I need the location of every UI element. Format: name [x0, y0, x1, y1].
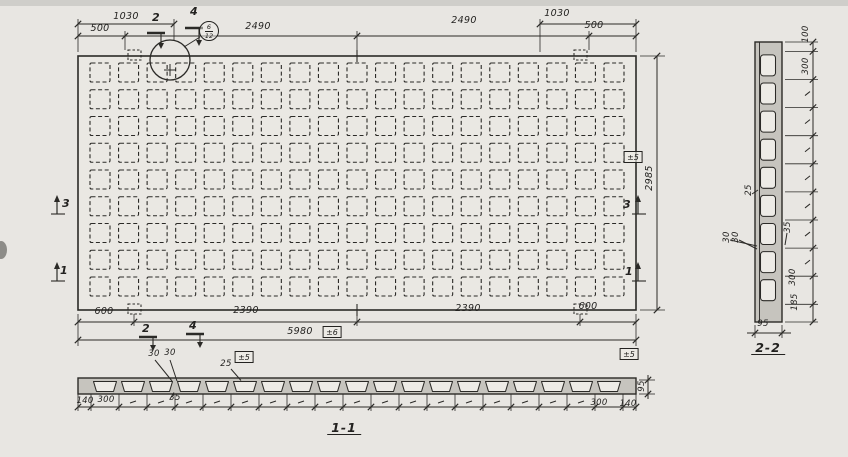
section11-void	[94, 382, 117, 392]
s22-end-185: 185	[790, 293, 800, 310]
section11-void	[374, 382, 397, 392]
dim-bottom-2390-right: 2390	[455, 304, 480, 314]
s22-rib-35: 35	[783, 221, 793, 232]
tolerance-plan-width: ±5	[624, 151, 643, 163]
s11-rib-35: 35	[169, 393, 180, 403]
cutmark-2-bottom: 2	[142, 324, 150, 334]
cutmark-1-right: 1	[625, 267, 633, 277]
dim-bottom-600-left: 600	[94, 307, 113, 317]
section11-void	[122, 382, 145, 392]
s22-300-top: 300	[801, 57, 811, 74]
detail-number: 6	[205, 23, 213, 32]
section22-void	[761, 83, 776, 104]
section11-void	[178, 382, 201, 392]
s11-rib30-b: 30	[164, 348, 175, 358]
section11-void	[430, 382, 453, 392]
section11-void	[318, 382, 341, 392]
scan-blob	[0, 241, 7, 259]
dim-top-500-left: 500	[90, 24, 109, 34]
section22-void	[761, 139, 776, 160]
s11-title: 1-1	[327, 423, 361, 435]
section11-void	[486, 382, 509, 392]
cutmark-3-right: 3	[623, 200, 631, 210]
section11-void	[290, 382, 313, 392]
dim-top-2490-left: 2490	[245, 22, 270, 32]
section11-void	[206, 382, 229, 392]
blueprint-canvas: 1030 500 2 4 2490 2490 1030 500 6 12 298…	[0, 0, 848, 457]
section11-void	[542, 382, 565, 392]
cutmark-3-left: 3	[62, 199, 70, 209]
s22-end-100: 100	[801, 25, 811, 42]
section11-void	[150, 382, 173, 392]
section22-void	[761, 55, 776, 76]
tolerance-length: ±6	[323, 326, 342, 338]
s11-height-95: 95	[637, 380, 647, 391]
s11-flange-25: 25	[220, 359, 231, 369]
dim-top-2490-right: 2490	[451, 16, 476, 26]
dim-top-1030-left: 1030	[113, 12, 138, 22]
s22-rib30-b: 30	[731, 231, 741, 242]
s11-pitch-300-left: 300	[97, 395, 114, 405]
s11-rib30-a: 30	[148, 349, 159, 359]
cutmark-4-bottom: 4	[189, 321, 197, 331]
detail-sheet-number: 12	[205, 32, 213, 40]
section22-void	[761, 280, 776, 301]
section11-void	[598, 382, 621, 392]
section11-void	[402, 382, 425, 392]
dim-bottom-5980: 5980	[287, 327, 312, 337]
dim-top-500-right: 500	[584, 21, 603, 31]
section11-void	[514, 382, 537, 392]
dim-bottom-2390-left: 2390	[233, 306, 258, 316]
s22-depth-95: 95	[757, 319, 768, 329]
s22-title: 2-2	[751, 343, 785, 355]
scan-band	[0, 0, 848, 6]
s22-300-bottom: 300	[788, 268, 798, 285]
section22-void	[761, 252, 776, 273]
section11-void	[262, 382, 285, 392]
section11-void	[234, 382, 257, 392]
section22-void	[761, 195, 776, 216]
detail-bubble: 6 12	[199, 21, 219, 41]
plan-outline	[78, 56, 636, 310]
s22-flange-25: 25	[744, 184, 754, 195]
drawing-linework	[0, 0, 848, 457]
section22-void	[761, 167, 776, 188]
section22-void	[761, 111, 776, 132]
s11-height-tol: ±5	[620, 348, 639, 360]
section11-void	[346, 382, 369, 392]
s11-edge-140-left: 140	[76, 396, 93, 406]
cutmark-1-left: 1	[60, 266, 68, 276]
dim-top-1030-right: 1030	[544, 9, 569, 19]
s11-pitch-300-right: 300	[590, 398, 607, 408]
section11-void	[458, 382, 481, 392]
section22-void	[761, 224, 776, 245]
dim-bottom-600-right: 600	[578, 302, 597, 312]
dim-right-2985: 2985	[645, 165, 655, 190]
s11-edge-140-right: 140	[619, 399, 636, 409]
cutmark-4-top: 4	[190, 7, 198, 17]
cutmark-2-top: 2	[152, 13, 160, 23]
s11-flange-tol: ±5	[235, 351, 254, 363]
section11-void	[570, 382, 593, 392]
